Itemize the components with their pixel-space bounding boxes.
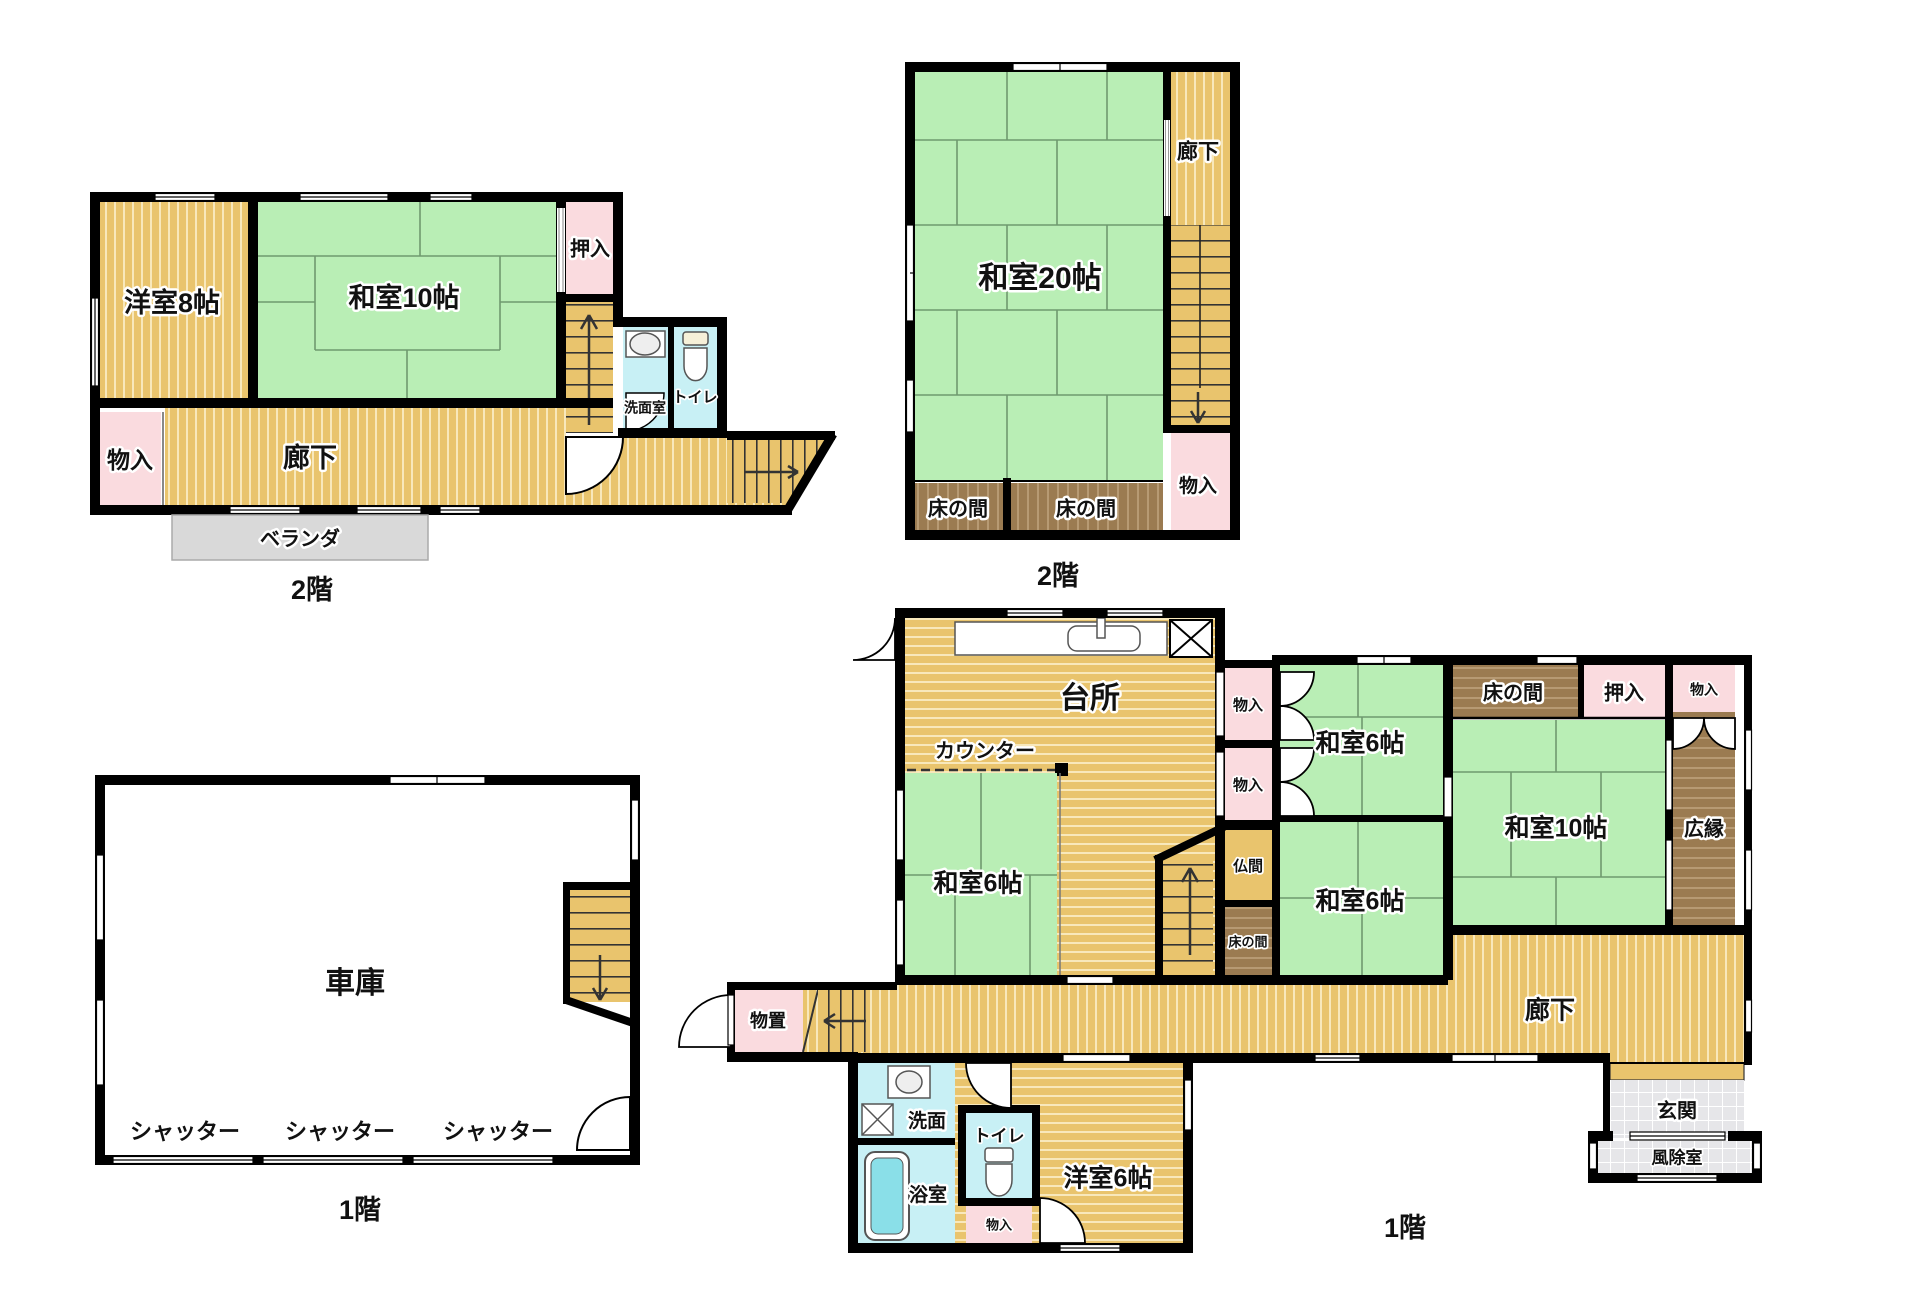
plan-lower-left-1f: 車庫 シャッター シャッター シャッター 1階 — [95, 775, 640, 1225]
room-label: 仏間 — [1233, 858, 1263, 875]
room-label: 物入 — [1179, 474, 1217, 497]
room-label: 床の間 — [1228, 934, 1267, 949]
room-label: トイレ — [974, 1126, 1025, 1145]
room-label: 床の間 — [1056, 496, 1116, 520]
sink-icon — [896, 1071, 922, 1093]
sliding-door — [557, 208, 565, 292]
room-label: 車庫 — [325, 967, 385, 1000]
room-label: 和室20帖 — [978, 261, 1101, 295]
floor-label: 2階 — [1037, 561, 1079, 591]
room-label: 押入 — [570, 236, 610, 260]
room-label: 和室6帖 — [1316, 887, 1405, 916]
faucet-icon — [1097, 618, 1105, 638]
room-label: 廊下 — [1177, 140, 1219, 164]
room-label: 物入 — [107, 447, 153, 473]
room-label: 和室6帖 — [934, 869, 1023, 898]
floor-label: 2階 — [291, 575, 333, 605]
toilet-icon — [986, 1164, 1012, 1196]
plan-upper-right-2f: 和室20帖 廊下 床の間 床の間 物入 2階 — [905, 62, 1240, 591]
machine-x-icon — [862, 1104, 893, 1135]
bathtub-water — [871, 1158, 903, 1234]
room-label: 物置 — [750, 1010, 786, 1031]
floorplan-page: 洋室8帖 和室10帖 押入 物入 廊下 洗面室 トイレ ベランダ 2階 — [0, 0, 1920, 1308]
room-label: 床の間 — [1483, 680, 1543, 704]
plan-upper-left-2f: 洋室8帖 和室10帖 押入 物入 廊下 洗面室 トイレ ベランダ 2階 — [90, 192, 850, 605]
room-label: 和室10帖 — [348, 282, 459, 313]
room-label: 押入 — [1604, 680, 1644, 704]
room-label: 洋室6帖 — [1064, 1164, 1153, 1193]
plan-lower-right-1f: 台所 カウンター 和室6帖 物入 物入 仏間 床の間 和室6帖 床の間 押入 物… — [679, 608, 1762, 1253]
room-label: 物入 — [1233, 776, 1263, 794]
room-label: 洗面 — [908, 1109, 946, 1132]
room-label: 床の間 — [928, 496, 988, 520]
room-label: トイレ — [672, 389, 717, 406]
toilet-icon — [684, 348, 707, 381]
room-label: 廊下 — [1525, 996, 1575, 1025]
toilet-tank-icon — [985, 1148, 1013, 1162]
room-label: 広縁 — [1684, 816, 1724, 840]
shutter-label: シャッター — [285, 1119, 395, 1144]
room-label: 廊下 — [283, 442, 337, 473]
room-label: 物入 — [1233, 696, 1263, 714]
room-label: 風除室 — [1652, 1147, 1703, 1167]
room-label: 洗面室 — [624, 400, 666, 416]
sliding-door — [1164, 120, 1170, 216]
hatch-x-icon — [1170, 620, 1212, 657]
toilet-tank-icon — [683, 332, 708, 345]
floorplan-drawing: 洋室8帖 和室10帖 押入 物入 廊下 洗面室 トイレ ベランダ 2階 — [0, 0, 1920, 1308]
room-label: 和室6帖 — [1316, 729, 1405, 758]
room-label: 物入 — [986, 1217, 1012, 1232]
room-label: ベランダ — [260, 526, 340, 550]
room-label: 物入 — [1690, 682, 1718, 698]
room-label: 浴室 — [909, 1183, 947, 1206]
room-label: 洋室8帖 — [124, 287, 220, 318]
door-arc-icon — [853, 618, 895, 660]
room-label: 台所 — [1060, 681, 1120, 715]
door-arc-icon — [679, 995, 731, 1047]
sink-icon — [630, 333, 660, 355]
floor-label: 1階 — [339, 1195, 381, 1225]
shutter-label: シャッター — [443, 1119, 553, 1144]
room-label: 和室10帖 — [1505, 814, 1608, 843]
shutter-label: シャッター — [130, 1119, 240, 1144]
room-label: カウンター — [935, 739, 1035, 762]
room-label: 玄関 — [1657, 1098, 1697, 1122]
entry-step — [1610, 1063, 1744, 1080]
floor-label: 1階 — [1384, 1213, 1426, 1243]
